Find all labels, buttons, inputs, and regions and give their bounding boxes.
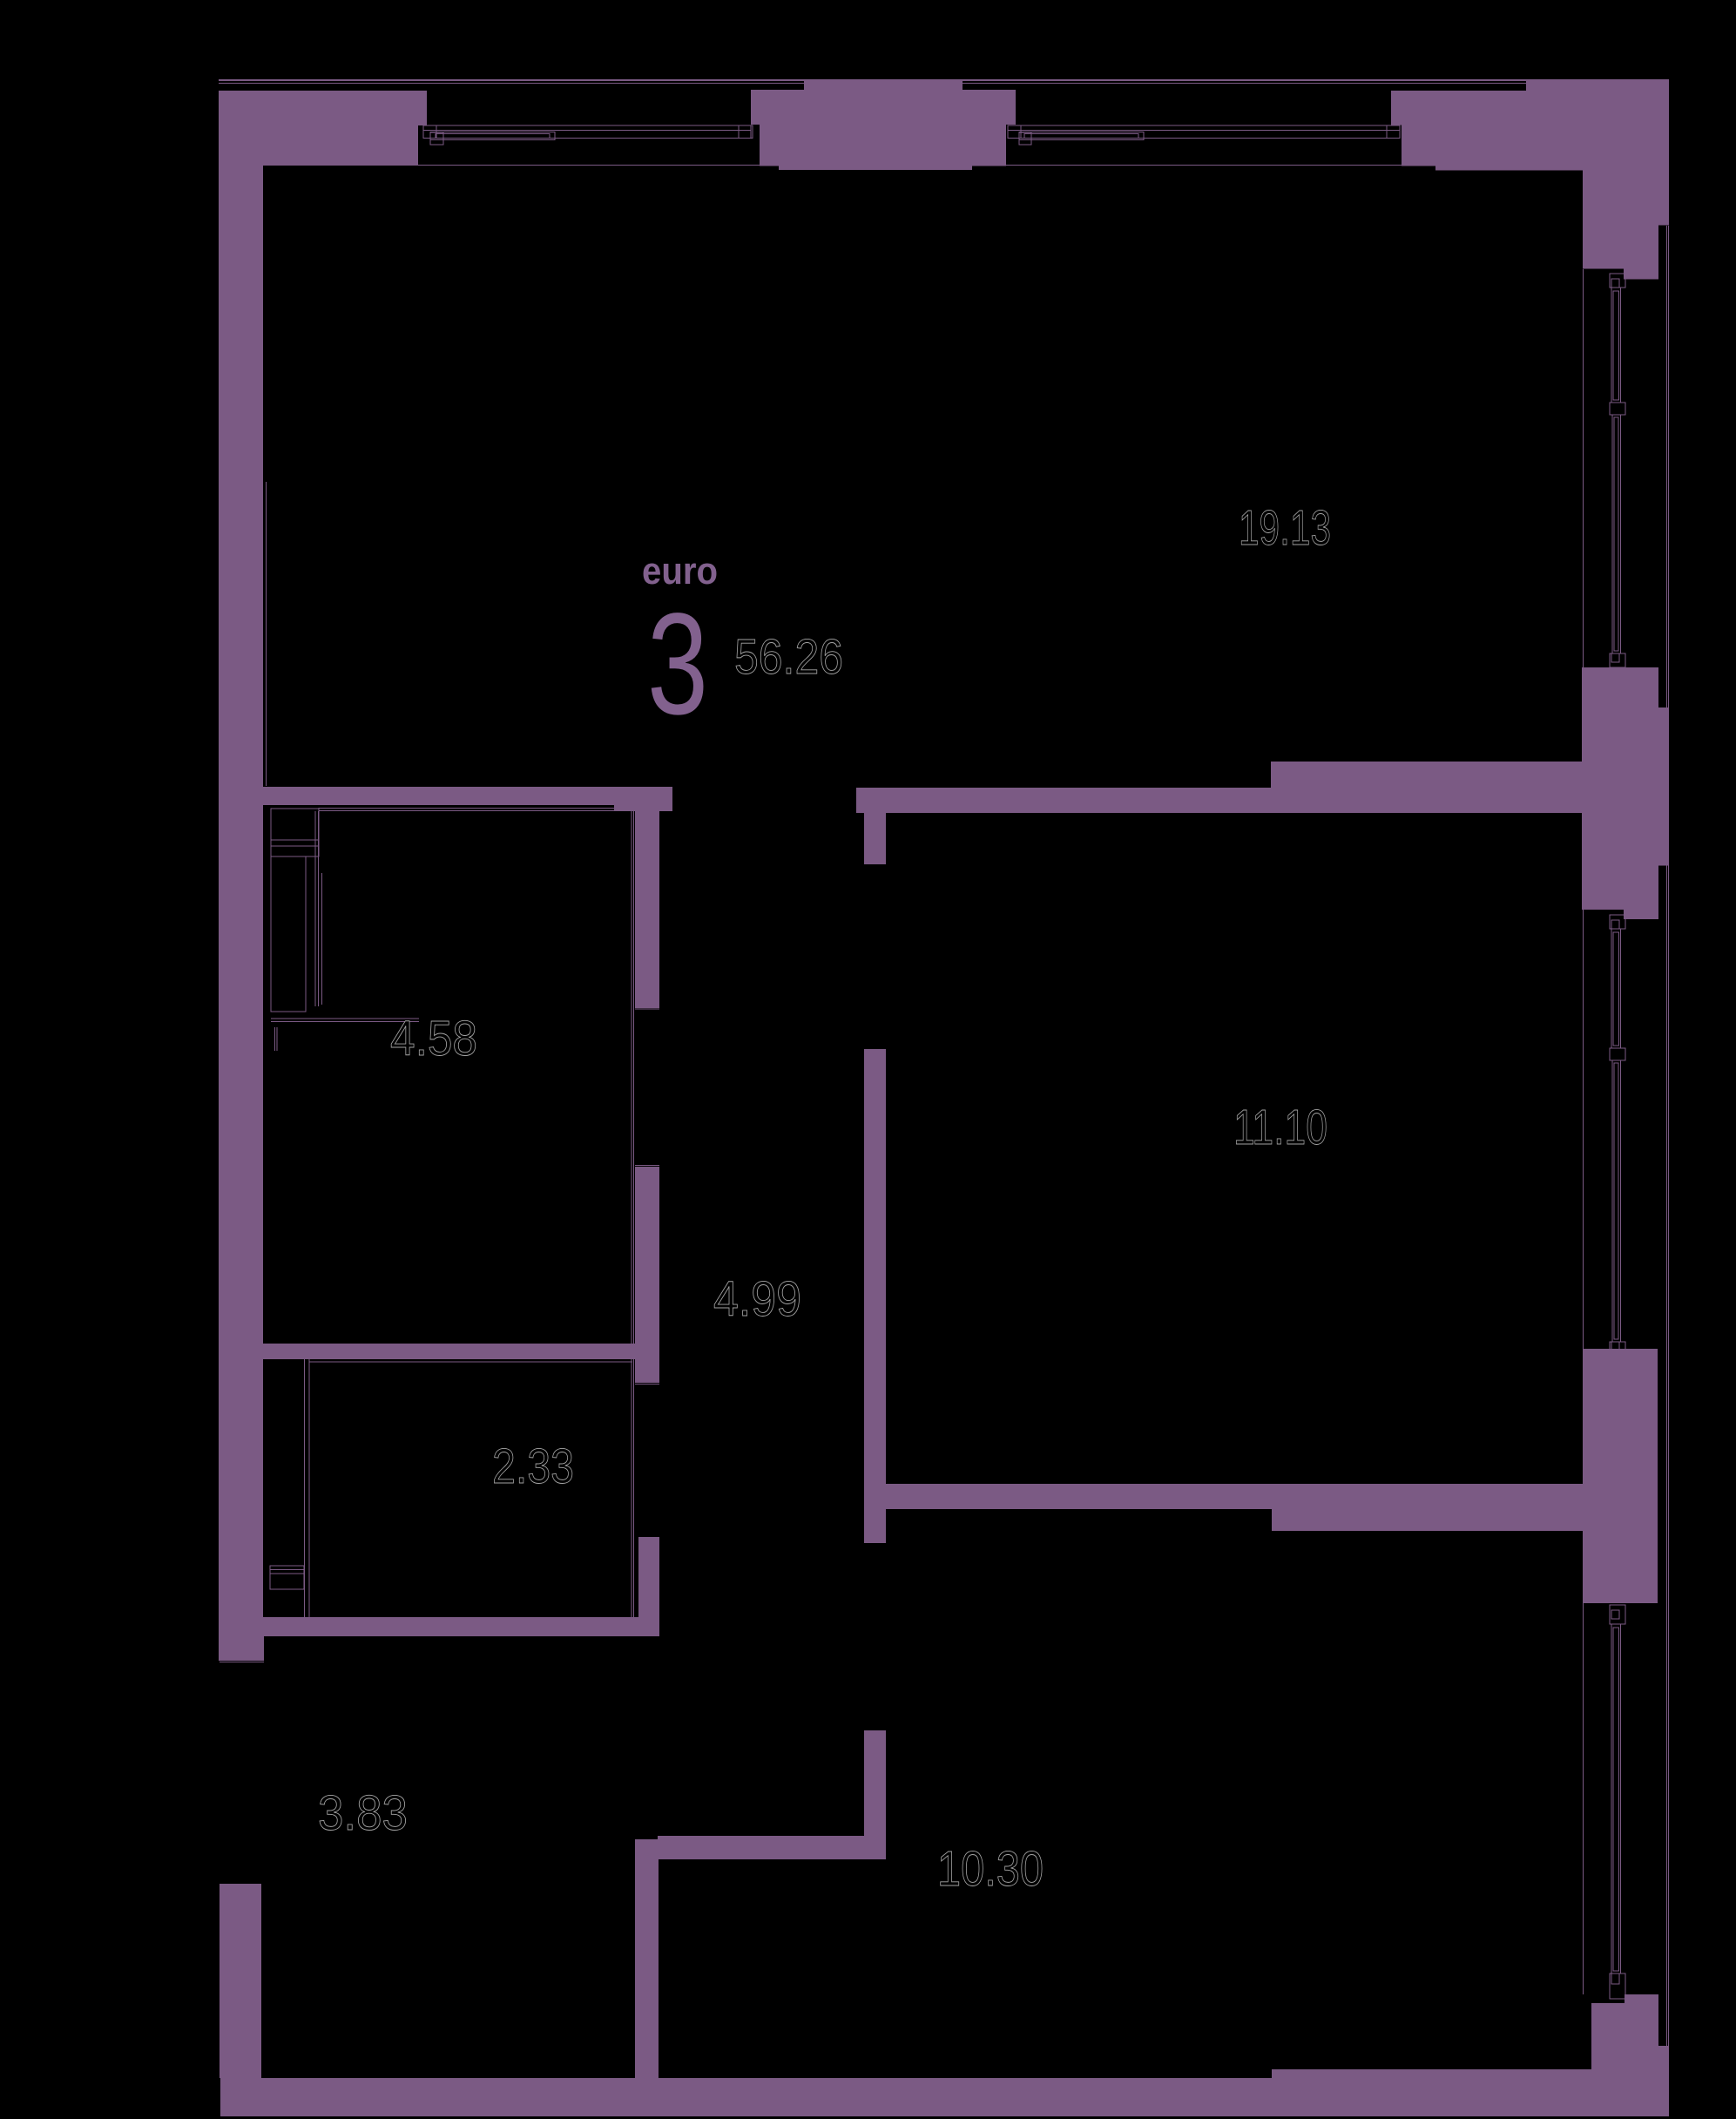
svg-text:11.10: 11.10 [1233,1100,1327,1155]
svg-text:56.26: 56.26 [734,629,843,685]
svg-text:2.33: 2.33 [492,1439,574,1494]
svg-text:19.13: 19.13 [1239,500,1331,556]
svg-text:4.58: 4.58 [390,1011,477,1066]
svg-text:3: 3 [647,584,708,745]
svg-text:3.83: 3.83 [318,1785,408,1841]
svg-text:10.30: 10.30 [937,1841,1044,1897]
svg-text:4.99: 4.99 [713,1271,801,1327]
